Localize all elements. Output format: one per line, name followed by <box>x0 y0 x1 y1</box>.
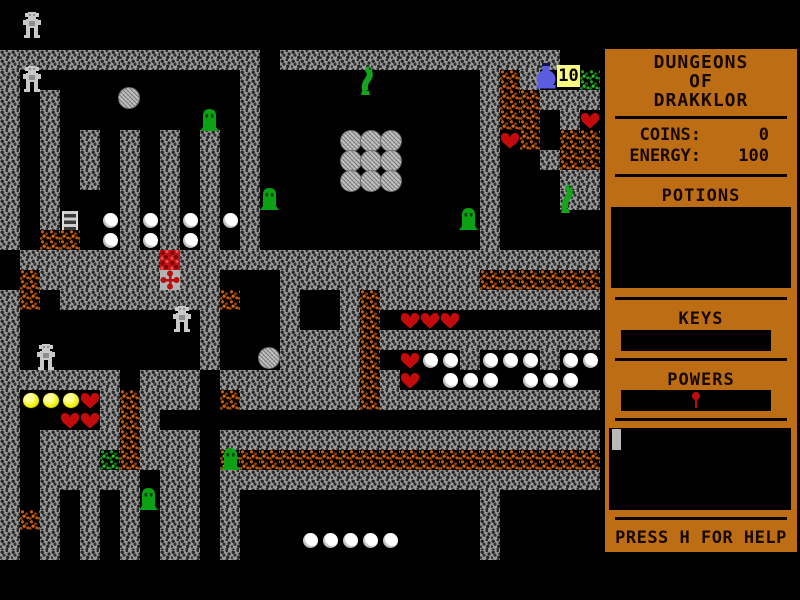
wall-tile <box>400 470 420 490</box>
wall-tile <box>340 390 360 410</box>
wall-tile <box>180 530 200 550</box>
rough-orange-tile <box>580 150 600 170</box>
coins-value: 0 <box>701 125 797 146</box>
rough-orange-tile <box>120 410 140 430</box>
wall-tile <box>480 130 500 150</box>
wall-tile <box>560 330 580 350</box>
boulder <box>380 130 402 152</box>
wall-tile <box>220 490 240 510</box>
wall-tile <box>580 430 600 450</box>
wall-tile <box>320 390 340 410</box>
wall-tile <box>380 470 400 490</box>
wall-tile <box>480 250 500 270</box>
wall-tile <box>280 310 300 330</box>
wall-tile <box>400 390 420 410</box>
wall-tile <box>580 390 600 410</box>
wall-tile <box>100 270 120 290</box>
wall-tile <box>120 150 140 170</box>
wall-tile <box>220 470 240 490</box>
white-orb <box>102 212 119 229</box>
rough-orange-tile <box>480 450 500 470</box>
wall-tile <box>480 290 500 310</box>
wall-tile <box>460 250 480 270</box>
wall-tile <box>380 270 400 290</box>
wall-tile <box>580 290 600 310</box>
powers-inventory-box <box>621 390 771 411</box>
gold-orb <box>22 392 40 409</box>
white-orb <box>102 232 119 249</box>
wall-tile <box>20 250 40 270</box>
wall-tile <box>40 190 60 210</box>
slime-monster <box>459 206 478 230</box>
golem-statue <box>36 344 56 370</box>
white-orb <box>442 372 459 389</box>
wall-tile <box>300 430 320 450</box>
energy-value: 100 <box>701 146 797 167</box>
wall-tile <box>400 290 420 310</box>
wall-tile <box>260 250 280 270</box>
rough-orange-tile <box>300 450 320 470</box>
wall-tile <box>140 410 160 430</box>
wall-tile <box>400 250 420 270</box>
wall-tile <box>240 390 260 410</box>
slime-monster <box>139 486 158 510</box>
wall-tile <box>480 150 500 170</box>
wall-tile <box>260 390 280 410</box>
wall-tile <box>380 290 400 310</box>
wall-tile <box>440 430 460 450</box>
wall-tile <box>300 50 320 70</box>
wall-tile <box>0 330 20 350</box>
wall-tile <box>340 290 360 310</box>
rough-orange-tile <box>520 450 540 470</box>
wall-tile <box>40 150 60 170</box>
wall-tile <box>280 370 300 390</box>
boulder <box>118 87 140 109</box>
wall-tile <box>160 190 180 210</box>
wall-tile <box>0 50 20 70</box>
wall-tile <box>160 450 180 470</box>
wall-tile <box>560 110 580 130</box>
wall-tile <box>380 250 400 270</box>
wall-tile <box>40 450 60 470</box>
wall-tile <box>240 110 260 130</box>
wall-tile <box>340 270 360 290</box>
rough-orange-tile <box>520 270 540 290</box>
wall-tile <box>220 250 240 270</box>
wall-tile <box>120 530 140 550</box>
wall-tile <box>280 50 300 70</box>
wall-tile <box>560 290 580 310</box>
wall-tile <box>120 50 140 70</box>
wall-tile <box>160 530 180 550</box>
wall-tile <box>0 510 20 530</box>
white-orb <box>462 372 479 389</box>
heart-pickup <box>421 312 440 329</box>
rough-orange-tile <box>220 290 240 310</box>
wall-tile <box>0 110 20 130</box>
golem-statue <box>172 306 192 332</box>
potions-label: POTIONS <box>605 186 797 206</box>
wall-tile <box>160 210 180 230</box>
wall-tile <box>60 370 80 390</box>
wall-tile <box>440 250 460 270</box>
flask-count-badge: 10 <box>557 65 580 87</box>
wall-tile <box>520 330 540 350</box>
wall-tile <box>340 250 360 270</box>
wall-tile <box>320 370 340 390</box>
wall-tile <box>480 50 500 70</box>
wall-tile <box>60 430 80 450</box>
wall-tile <box>80 270 100 290</box>
wall-tile <box>300 330 320 350</box>
wall-tile <box>100 410 120 430</box>
wall-tile <box>520 250 540 270</box>
wall-tile <box>40 50 60 70</box>
wall-tile <box>0 290 20 310</box>
wall-tile <box>80 130 100 150</box>
rough-orange-tile <box>360 370 380 390</box>
rough-orange-tile <box>360 390 380 410</box>
wall-tile <box>240 430 260 450</box>
wall-tile <box>220 530 240 550</box>
wall-tile <box>340 430 360 450</box>
wall-tile <box>340 350 360 370</box>
wall-tile <box>420 250 440 270</box>
wall-tile <box>520 290 540 310</box>
items-box <box>609 428 791 510</box>
wall-tile <box>160 470 180 490</box>
wall-tile <box>160 170 180 190</box>
wall-tile <box>540 330 560 350</box>
white-orb <box>362 532 379 549</box>
rough-orange-tile <box>360 450 380 470</box>
rough-orange-tile <box>60 230 80 250</box>
wall-tile <box>40 130 60 150</box>
wall-tile <box>380 430 400 450</box>
wall-tile <box>240 70 260 90</box>
wall-tile <box>120 490 140 510</box>
rough-orange-tile <box>320 450 340 470</box>
wall-tile <box>80 470 100 490</box>
wall-tile <box>560 90 580 110</box>
wall-tile <box>500 250 520 270</box>
wall-tile <box>180 370 200 390</box>
wall-tile <box>520 470 540 490</box>
wall-tile <box>160 130 180 150</box>
wall-tile <box>40 470 60 490</box>
rough-orange-tile <box>560 150 580 170</box>
rough-orange-tile <box>520 110 540 130</box>
wall-tile <box>60 290 80 310</box>
divider <box>615 358 787 361</box>
wall-tile <box>180 450 200 470</box>
rough-orange-tile <box>360 310 380 330</box>
wall-tile <box>460 430 480 450</box>
wall-tile <box>280 390 300 410</box>
wall-tile <box>420 470 440 490</box>
wall-tile <box>0 230 20 250</box>
rough-orange-tile <box>580 450 600 470</box>
wall-tile <box>180 250 200 270</box>
wall-tile <box>140 390 160 410</box>
wall-tile <box>480 490 500 510</box>
wall-tile <box>240 250 260 270</box>
wall-tile <box>160 230 180 250</box>
wall-tile <box>280 350 300 370</box>
wall-tile <box>300 250 320 270</box>
wall-tile <box>100 250 120 270</box>
rough-orange-tile <box>420 450 440 470</box>
wall-tile <box>240 470 260 490</box>
keys-label: KEYS <box>605 309 797 329</box>
heart-pickup <box>441 312 460 329</box>
wall-tile <box>60 470 80 490</box>
rough-orange-tile <box>560 450 580 470</box>
wall-tile <box>360 250 380 270</box>
wall-tile <box>320 270 340 290</box>
white-orb <box>522 372 539 389</box>
heart-pickup <box>81 392 100 409</box>
rough-orange-tile <box>20 290 40 310</box>
wall-tile <box>100 50 120 70</box>
wall-tile <box>240 190 260 210</box>
wall-tile <box>480 390 500 410</box>
wall-tile <box>440 290 460 310</box>
rough-orange-tile <box>440 450 460 470</box>
wall-tile <box>440 390 460 410</box>
wall-tile <box>480 90 500 110</box>
wall-tile <box>200 50 220 70</box>
wall-tile <box>180 50 200 70</box>
heart-pickup <box>401 352 420 369</box>
rough-orange-tile <box>540 450 560 470</box>
wall-tile <box>180 430 200 450</box>
wall-tile <box>480 110 500 130</box>
wall-tile <box>540 90 560 110</box>
wall-tile <box>40 210 60 230</box>
wall-tile <box>500 390 520 410</box>
wall-tile <box>200 150 220 170</box>
wall-tile <box>0 370 20 390</box>
rough-orange-tile <box>500 70 520 90</box>
wall-tile <box>240 170 260 190</box>
wall-tile <box>500 290 520 310</box>
rough-orange-tile <box>560 130 580 150</box>
boulder <box>340 130 362 152</box>
wall-tile <box>140 250 160 270</box>
rough-orange-tile <box>120 450 140 470</box>
wall-tile <box>120 210 140 230</box>
wall-tile <box>380 50 400 70</box>
wall-tile <box>200 310 220 330</box>
wall-tile <box>420 430 440 450</box>
wall-tile <box>500 430 520 450</box>
white-orb <box>482 352 499 369</box>
wall-tile <box>320 350 340 370</box>
wall-tile <box>140 370 160 390</box>
wall-tile <box>480 230 500 250</box>
wall-tile <box>140 290 160 310</box>
rough-green-tile <box>580 70 600 90</box>
wall-tile <box>440 470 460 490</box>
rough-orange-tile <box>280 450 300 470</box>
wall-tile <box>380 330 400 350</box>
wall-tile <box>460 50 480 70</box>
wall-tile <box>120 170 140 190</box>
wall-tile <box>0 530 20 550</box>
wall-tile <box>40 490 60 510</box>
keys-inventory-box <box>621 330 771 351</box>
wall-tile <box>440 330 460 350</box>
divider <box>615 517 787 520</box>
game-title-line-3: DRAKKLOR <box>605 91 797 110</box>
wall-tile <box>200 350 220 370</box>
golem-statue <box>22 12 42 38</box>
wall-tile <box>120 270 140 290</box>
white-orb <box>182 212 199 229</box>
wall-tile <box>40 170 60 190</box>
wall-tile <box>280 430 300 450</box>
slime-monster <box>260 186 279 210</box>
wall-tile <box>260 470 280 490</box>
wall-tile <box>0 470 20 490</box>
wall-tile <box>500 330 520 350</box>
rough-orange-tile <box>20 270 40 290</box>
rough-orange-tile <box>580 130 600 150</box>
wall-tile <box>120 510 140 530</box>
wall-tile <box>140 50 160 70</box>
wall-tile <box>120 290 140 310</box>
wall-tile <box>240 90 260 110</box>
wall-tile <box>280 470 300 490</box>
wall-tile <box>120 250 140 270</box>
wall-tile <box>580 470 600 490</box>
wall-tile <box>440 270 460 290</box>
wall-tile <box>80 450 100 470</box>
wall-tile <box>460 270 480 290</box>
wall-tile <box>200 290 220 310</box>
wall-tile <box>80 490 100 510</box>
energy-label: ENERGY: <box>605 146 701 167</box>
rough-orange-tile <box>480 270 500 290</box>
wall-tile <box>140 430 160 450</box>
wall-tile <box>40 370 60 390</box>
wall-tile <box>220 370 240 390</box>
wall-tile <box>160 150 180 170</box>
wall-tile <box>120 190 140 210</box>
wall-tile <box>80 530 100 550</box>
wall-tile <box>0 150 20 170</box>
wall-tile <box>400 50 420 70</box>
rough-orange-tile <box>500 110 520 130</box>
rough-orange-tile <box>20 510 40 530</box>
wall-tile <box>320 50 340 70</box>
boulder <box>380 170 402 192</box>
wall-tile <box>40 510 60 530</box>
boulder <box>360 170 382 192</box>
wall-tile <box>180 490 200 510</box>
wall-tile <box>540 470 560 490</box>
boulder <box>340 170 362 192</box>
wall-tile <box>300 350 320 370</box>
gold-orb <box>62 392 80 409</box>
wall-tile <box>340 370 360 390</box>
boulder <box>380 150 402 172</box>
dungeon-map[interactable] <box>0 0 600 600</box>
wall-tile <box>540 250 560 270</box>
wall-tile <box>480 170 500 190</box>
game-title-line-1: DUNGEONS <box>605 53 797 72</box>
wall-tile <box>540 290 560 310</box>
wall-tile <box>100 290 120 310</box>
wall-tile <box>400 330 420 350</box>
wall-tile <box>280 290 300 310</box>
wall-tile <box>480 430 500 450</box>
rough-orange-tile <box>460 450 480 470</box>
wall-tile <box>280 250 300 270</box>
game-title-line-2: OF <box>605 72 797 91</box>
potion-flask-icon <box>535 63 557 93</box>
wall-tile <box>160 430 180 450</box>
wall-tile <box>240 230 260 250</box>
wall-tile <box>240 370 260 390</box>
wall-tile <box>420 50 440 70</box>
wall-tile <box>480 190 500 210</box>
wall-tile <box>460 330 480 350</box>
wall-tile <box>560 430 580 450</box>
wall-tile <box>500 470 520 490</box>
wall-tile <box>420 290 440 310</box>
wall-tile <box>480 70 500 90</box>
wall-tile <box>0 90 20 110</box>
wall-tile <box>80 370 100 390</box>
wall-tile <box>300 390 320 410</box>
wall-tile <box>0 450 20 470</box>
wall-tile <box>160 50 180 70</box>
wall-tile <box>580 330 600 350</box>
wall-tile <box>320 330 340 350</box>
wall-tile <box>200 230 220 250</box>
wall-tile <box>460 350 480 370</box>
wall-tile <box>120 230 140 250</box>
wall-tile <box>120 470 140 490</box>
wall-tile <box>240 50 260 70</box>
wall-tile <box>180 390 200 410</box>
rough-orange-tile <box>580 270 600 290</box>
gold-orb <box>42 392 60 409</box>
rough-orange-tile <box>500 450 520 470</box>
wall-tile <box>460 290 480 310</box>
boulder <box>258 347 280 369</box>
wall-tile <box>40 270 60 290</box>
wall-tile <box>560 390 580 410</box>
rough-orange-tile <box>360 290 380 310</box>
wall-tile <box>400 270 420 290</box>
rough-orange-tile <box>120 390 140 410</box>
divider <box>615 418 787 421</box>
rough-orange-tile <box>500 270 520 290</box>
wall-tile <box>340 330 360 350</box>
white-orb <box>302 532 319 549</box>
wall-tile <box>0 190 20 210</box>
wall-tile <box>480 510 500 530</box>
wall-tile <box>240 150 260 170</box>
wall-tile <box>80 290 100 310</box>
wall-tile <box>580 170 600 190</box>
divider <box>615 174 787 177</box>
wall-tile <box>0 490 20 510</box>
